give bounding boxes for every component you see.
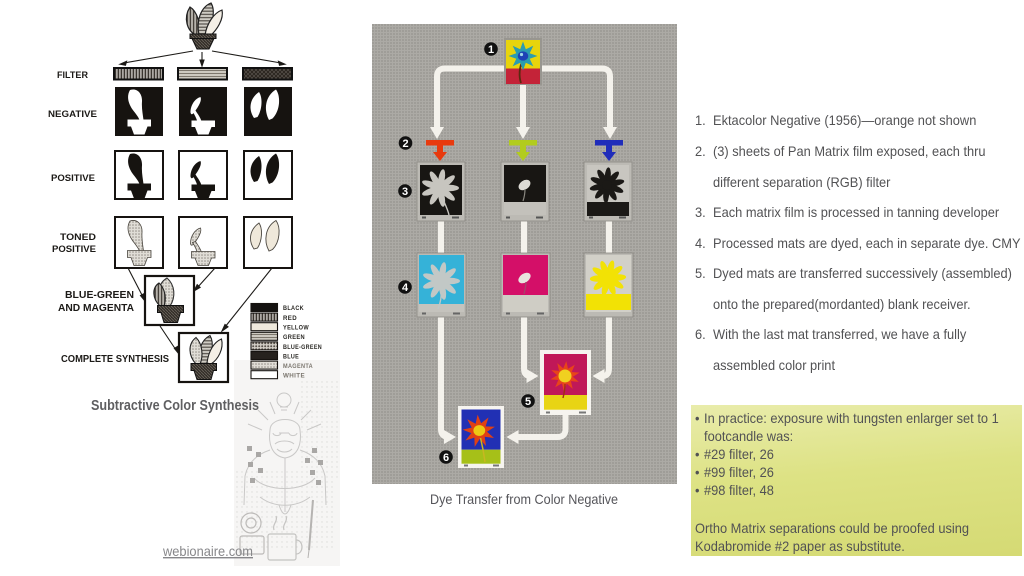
- svg-text:6: 6: [443, 452, 449, 464]
- svg-text:4: 4: [402, 282, 409, 294]
- svg-text:BLUE: BLUE: [283, 353, 299, 360]
- svg-text:3: 3: [402, 186, 408, 198]
- svg-text:BLUE-GREEN: BLUE-GREEN: [65, 289, 134, 301]
- svg-text:NEGATIVE: NEGATIVE: [48, 109, 97, 120]
- svg-text:Subtractive Color Synthesis: Subtractive Color Synthesis: [91, 398, 259, 414]
- svg-text:webionaire.com: webionaire.com: [162, 543, 253, 559]
- svg-text:1: 1: [488, 44, 494, 56]
- svg-text:COMPLETE SYNTHESIS: COMPLETE SYNTHESIS: [61, 353, 169, 365]
- svg-text:AND MAGENTA: AND MAGENTA: [58, 302, 134, 314]
- svg-text:2: 2: [402, 138, 408, 150]
- svg-text:FILTER: FILTER: [57, 70, 88, 81]
- svg-text:5: 5: [525, 396, 531, 408]
- svg-text:YELLOW: YELLOW: [283, 325, 309, 332]
- svg-text:MAGENTA: MAGENTA: [283, 363, 313, 370]
- svg-text:BLACK: BLACK: [283, 305, 304, 312]
- svg-text:BLUE-GREEN: BLUE-GREEN: [283, 344, 322, 351]
- svg-text:RED: RED: [283, 315, 297, 322]
- svg-text:GREEN: GREEN: [283, 334, 305, 341]
- svg-text:TONED: TONED: [60, 232, 96, 243]
- svg-text:POSITIVE: POSITIVE: [51, 173, 95, 184]
- svg-text:WHITE: WHITE: [283, 373, 305, 380]
- svg-text:POSITIVE: POSITIVE: [52, 244, 96, 255]
